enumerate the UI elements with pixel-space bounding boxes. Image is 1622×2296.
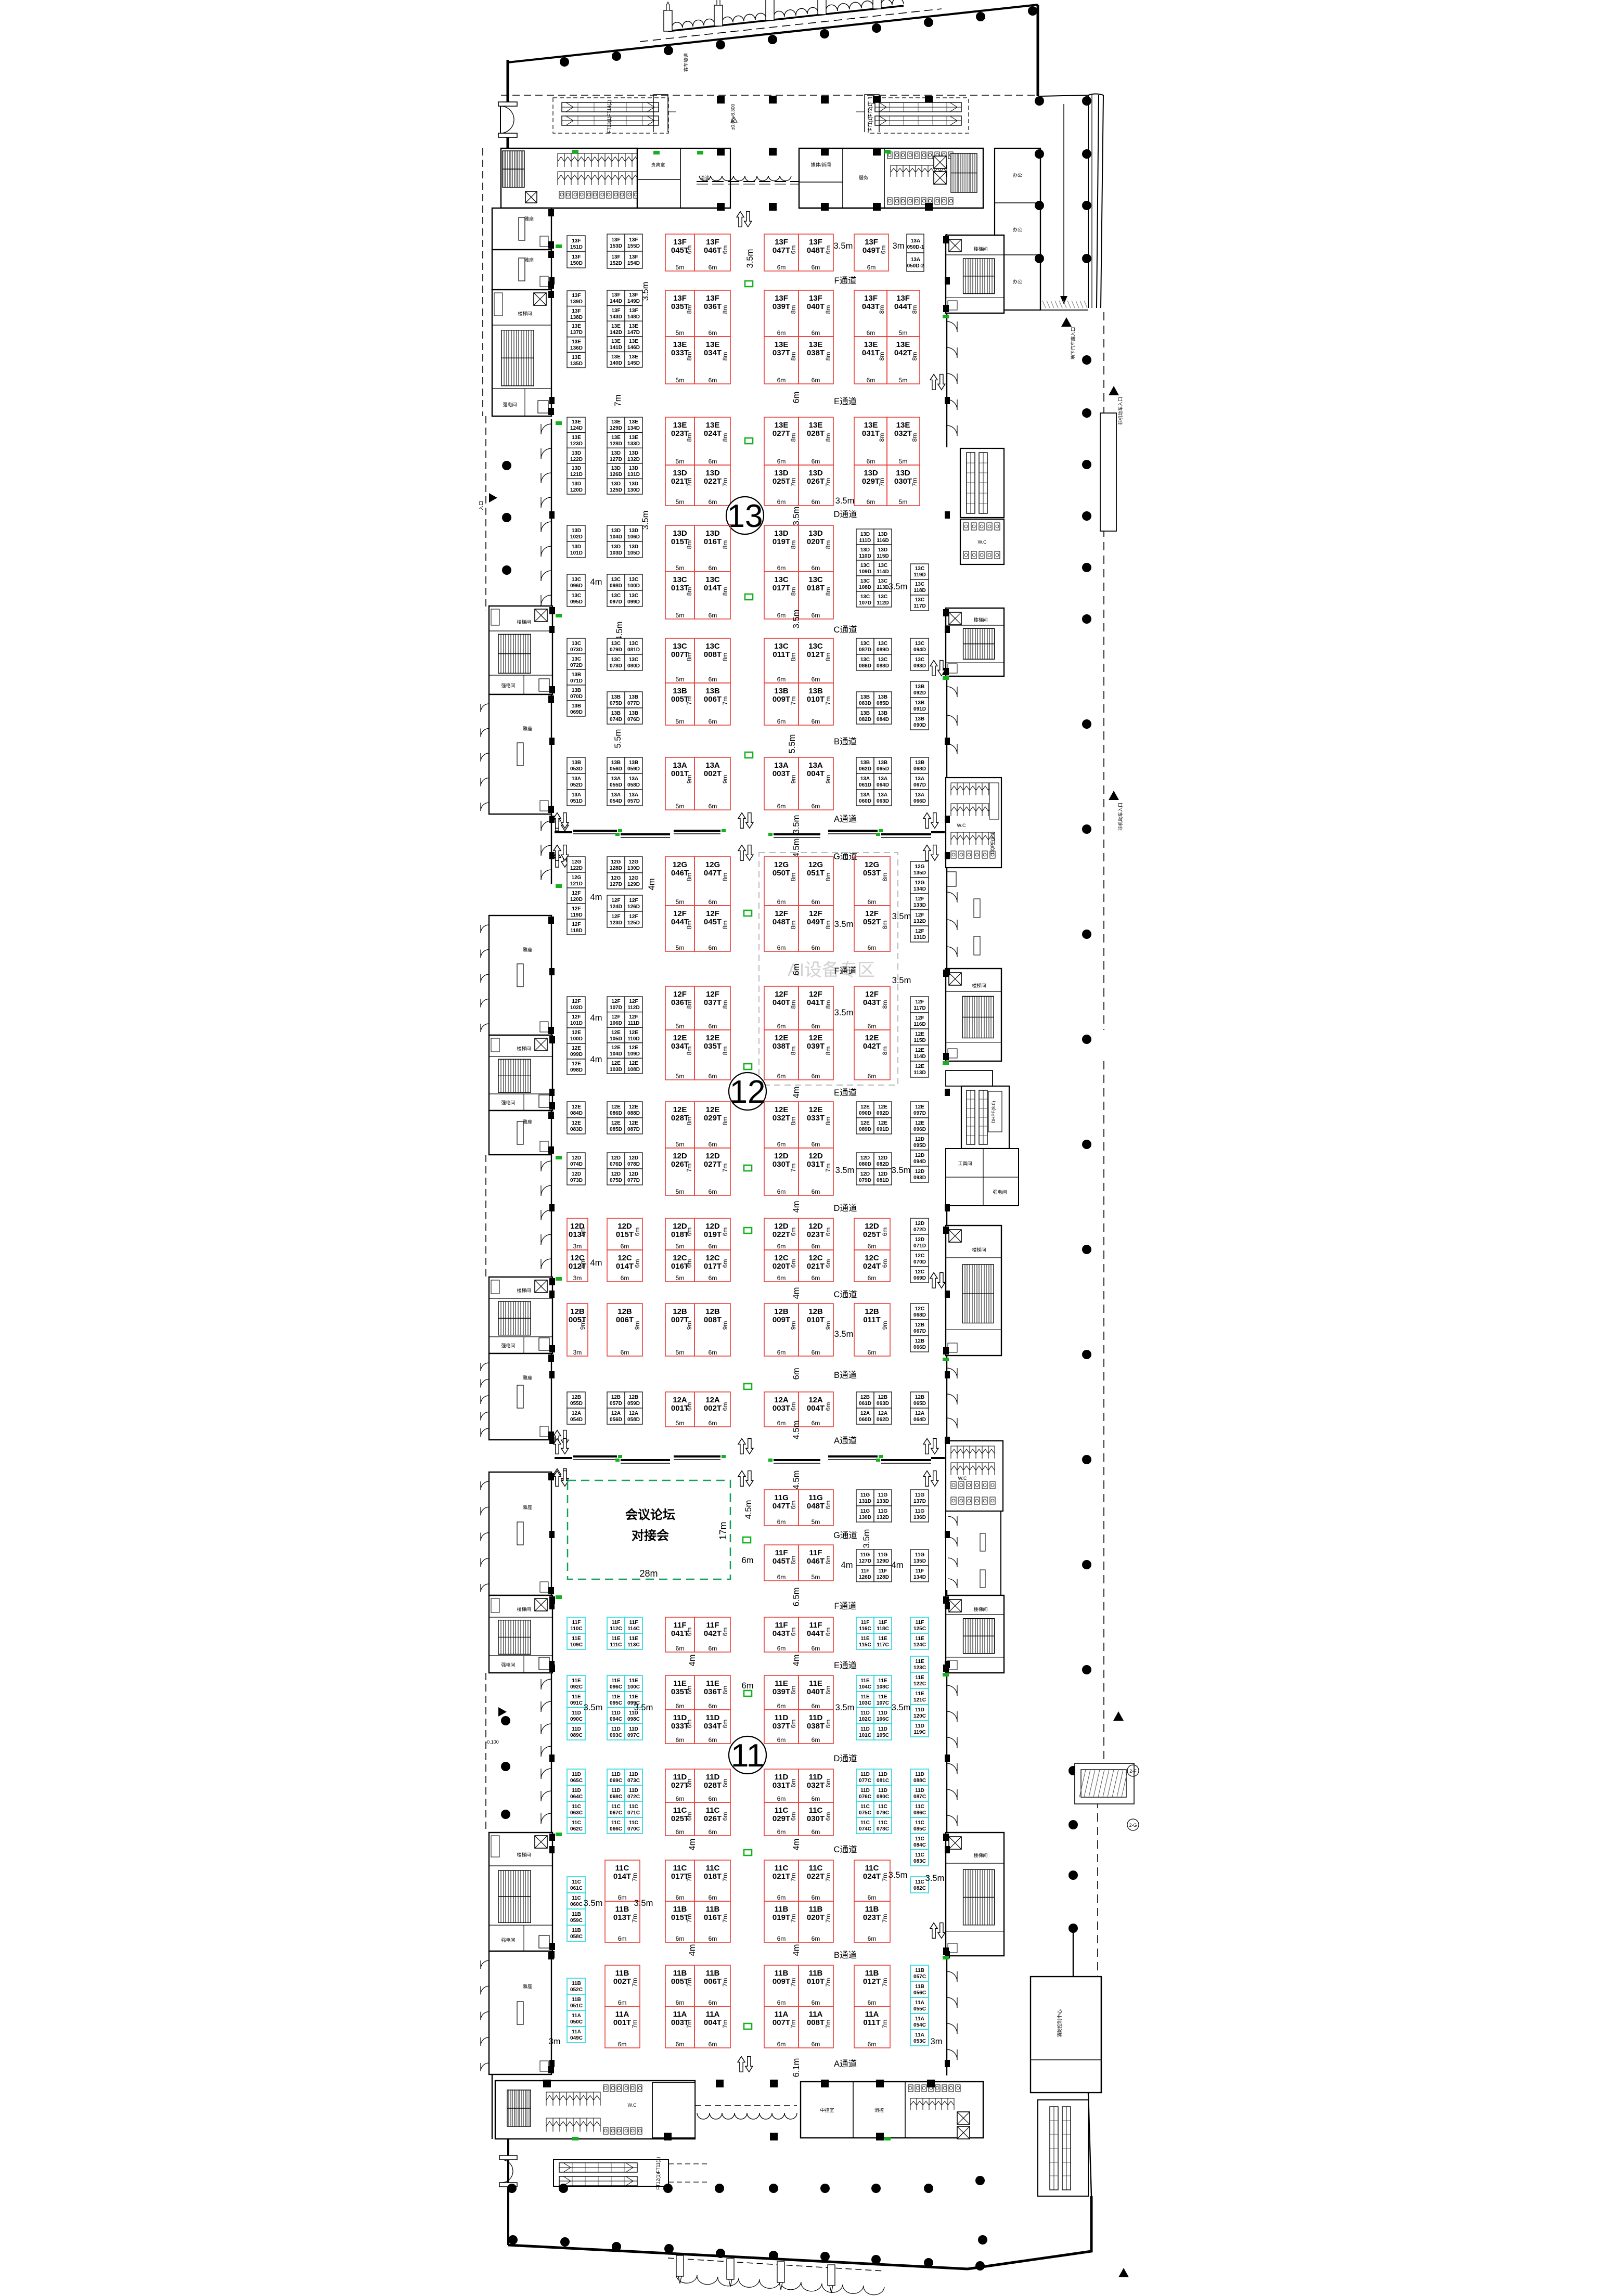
svg-text:12G: 12G: [629, 875, 639, 881]
svg-text:072C: 072C: [627, 1794, 640, 1800]
svg-text:3.5m: 3.5m: [889, 1871, 908, 1880]
svg-text:7m: 7m: [686, 696, 693, 705]
svg-text:12E: 12E: [629, 1104, 638, 1110]
svg-text:11E: 11E: [611, 1678, 621, 1684]
svg-text:111C: 111C: [610, 1642, 622, 1648]
svg-text:6m: 6m: [777, 498, 786, 506]
svg-text:110D: 110D: [627, 1036, 639, 1042]
svg-text:12E: 12E: [611, 1120, 621, 1126]
svg-text:11: 11: [731, 1738, 764, 1774]
svg-text:中控室: 中控室: [820, 2107, 834, 2113]
svg-text:127D: 127D: [859, 1558, 871, 1564]
svg-text:7m: 7m: [686, 478, 693, 487]
svg-text:089D: 089D: [877, 647, 889, 653]
svg-text:076D: 076D: [610, 1162, 622, 1167]
svg-text:13E: 13E: [611, 419, 621, 425]
svg-text:12E: 12E: [706, 1105, 720, 1114]
svg-text:强电间: 强电间: [993, 1189, 1007, 1195]
svg-text:067D: 067D: [913, 782, 926, 788]
svg-text:11D: 11D: [915, 1772, 924, 1777]
svg-text:11F: 11F: [673, 1621, 686, 1630]
svg-text:D通道: D通道: [834, 1753, 857, 1763]
svg-text:6m: 6m: [790, 1812, 797, 1821]
svg-text:050T: 050T: [773, 869, 790, 878]
svg-text:17m: 17m: [718, 1521, 728, 1540]
svg-text:6m: 6m: [777, 1023, 786, 1030]
svg-text:6m: 6m: [686, 1720, 693, 1729]
svg-text:002T: 002T: [613, 1977, 631, 1986]
svg-text:7m: 7m: [881, 1914, 889, 1923]
svg-text:雅座: 雅座: [523, 1983, 532, 1989]
svg-text:014T: 014T: [616, 1262, 634, 1271]
svg-text:6m: 6m: [812, 329, 820, 337]
svg-text:12D: 12D: [865, 1222, 879, 1231]
svg-text:6m: 6m: [709, 803, 717, 810]
svg-text:6m: 6m: [621, 1243, 629, 1250]
svg-text:6m: 6m: [868, 1023, 877, 1030]
svg-text:6m: 6m: [812, 2041, 820, 2048]
svg-text:11C: 11C: [673, 1864, 687, 1873]
svg-text:057D: 057D: [627, 798, 640, 804]
svg-text:13E: 13E: [572, 419, 581, 425]
svg-text:090D: 090D: [859, 1111, 871, 1116]
svg-text:13C: 13C: [860, 641, 870, 647]
svg-text:8m: 8m: [686, 540, 693, 549]
svg-text:6m: 6m: [825, 1720, 832, 1729]
svg-text:8m: 8m: [825, 921, 832, 930]
svg-text:011T: 011T: [863, 1315, 880, 1324]
svg-text:13E: 13E: [572, 355, 581, 360]
svg-text:068D: 068D: [913, 1312, 926, 1318]
svg-text:8m: 8m: [878, 352, 885, 361]
svg-text:13C: 13C: [611, 657, 621, 663]
svg-text:008T: 008T: [704, 1315, 722, 1324]
svg-text:067D: 067D: [913, 1328, 926, 1334]
svg-text:120C: 120C: [913, 1713, 926, 1719]
svg-text:6m: 6m: [676, 1999, 685, 2006]
svg-text:146D: 146D: [627, 345, 640, 351]
svg-text:8m: 8m: [825, 653, 832, 662]
svg-text:12E: 12E: [706, 1034, 720, 1042]
svg-text:11C: 11C: [572, 1895, 581, 1901]
svg-text:12E: 12E: [673, 1034, 687, 1042]
svg-text:B通道: B通道: [834, 1370, 857, 1380]
svg-text:5m: 5m: [676, 718, 685, 725]
svg-text:12E: 12E: [865, 1034, 879, 1042]
svg-text:6m: 6m: [812, 1935, 820, 1942]
svg-text:12D: 12D: [878, 1155, 887, 1161]
svg-text:6m: 6m: [790, 1720, 797, 1729]
svg-text:4m: 4m: [792, 1655, 801, 1667]
svg-text:075C: 075C: [859, 1810, 871, 1816]
svg-text:13E: 13E: [629, 419, 638, 425]
svg-text:13C: 13C: [705, 575, 720, 584]
svg-text:13B: 13B: [915, 760, 924, 766]
svg-text:126D: 126D: [859, 1575, 871, 1580]
svg-text:040T: 040T: [807, 1687, 825, 1696]
svg-text:5m: 5m: [676, 803, 685, 810]
svg-text:116C: 116C: [859, 1626, 871, 1632]
svg-text:031T: 031T: [773, 1781, 790, 1790]
svg-text:13B: 13B: [878, 760, 887, 766]
svg-text:6m: 6m: [825, 1779, 832, 1788]
svg-text:6m: 6m: [825, 1556, 832, 1565]
svg-text:12A: 12A: [808, 1396, 823, 1404]
svg-text:085D: 085D: [610, 1127, 622, 1132]
svg-text:11G: 11G: [878, 1552, 888, 1558]
svg-text:028T: 028T: [704, 1781, 722, 1790]
svg-text:3.5m: 3.5m: [892, 912, 911, 921]
svg-text:12F: 12F: [611, 898, 620, 904]
svg-text:12: 12: [730, 1074, 766, 1110]
svg-text:13C: 13C: [611, 577, 621, 583]
svg-text:6m: 6m: [868, 1894, 877, 1901]
svg-text:6m: 6m: [621, 1274, 629, 1282]
svg-text:12F: 12F: [611, 999, 620, 1004]
svg-text:154D: 154D: [627, 261, 640, 266]
svg-text:7m: 7m: [722, 2020, 729, 2029]
svg-text:030T: 030T: [807, 1814, 825, 1823]
svg-text:078D: 078D: [610, 663, 622, 669]
svg-text:13D: 13D: [629, 466, 638, 471]
svg-text:12C: 12C: [808, 1254, 823, 1262]
svg-text:8m: 8m: [881, 1000, 889, 1009]
svg-text:064D: 064D: [913, 1417, 926, 1423]
svg-text:4m: 4m: [792, 1087, 801, 1099]
svg-text:11B: 11B: [615, 1905, 629, 1914]
svg-text:6m: 6m: [868, 1999, 877, 2006]
svg-text:098D: 098D: [610, 583, 622, 589]
svg-text:11C: 11C: [878, 1804, 887, 1810]
svg-text:3.5m: 3.5m: [835, 496, 855, 506]
svg-text:6m: 6m: [777, 1702, 786, 1710]
svg-text:7m: 7m: [722, 1164, 729, 1172]
svg-text:13B: 13B: [915, 716, 924, 722]
svg-text:11C: 11C: [706, 1806, 720, 1815]
svg-text:楼梯间: 楼梯间: [517, 1606, 531, 1612]
svg-text:078C: 078C: [877, 1826, 889, 1832]
svg-text:6m: 6m: [812, 1420, 820, 1427]
svg-text:13A: 13A: [611, 792, 621, 798]
svg-text:095C: 095C: [610, 1700, 622, 1706]
svg-text:103D: 103D: [610, 1067, 622, 1073]
svg-text:103D: 103D: [610, 550, 622, 556]
svg-text:4m: 4m: [792, 1287, 801, 1299]
svg-text:087D: 087D: [627, 1127, 640, 1132]
svg-text:004T: 004T: [704, 2018, 722, 2027]
svg-text:3m: 3m: [549, 2037, 561, 2046]
svg-text:13C: 13C: [860, 578, 870, 584]
svg-text:11E: 11E: [611, 1694, 621, 1700]
svg-text:13E: 13E: [809, 421, 823, 430]
svg-text:053D: 053D: [570, 766, 583, 772]
svg-text:087C: 087C: [913, 1794, 926, 1800]
svg-text:13E: 13E: [896, 421, 910, 430]
svg-text:110D: 110D: [859, 553, 871, 559]
svg-text:043T: 043T: [862, 302, 880, 311]
svg-text:6m: 6m: [676, 1828, 685, 1836]
svg-text:094D: 094D: [913, 1159, 926, 1165]
svg-text:12E: 12E: [629, 1030, 638, 1036]
svg-text:11F: 11F: [572, 1620, 581, 1626]
svg-text:E通道: E通道: [834, 396, 857, 406]
svg-text:7m: 7m: [825, 1873, 832, 1882]
svg-text:047T: 047T: [773, 246, 790, 255]
svg-text:11C: 11C: [611, 1820, 621, 1826]
svg-text:13D: 13D: [774, 529, 789, 538]
svg-text:13A: 13A: [673, 761, 687, 770]
svg-text:13B: 13B: [611, 711, 621, 716]
svg-text:12F: 12F: [572, 891, 581, 896]
svg-text:8m: 8m: [686, 587, 693, 596]
svg-text:5m: 5m: [676, 1274, 685, 1282]
svg-text:079C: 079C: [877, 1810, 889, 1816]
svg-text:11D: 11D: [775, 1773, 789, 1782]
svg-text:6m: 6m: [790, 1779, 797, 1788]
svg-text:122D: 122D: [570, 457, 583, 462]
svg-text:049T: 049T: [863, 246, 880, 255]
svg-text:9m: 9m: [790, 775, 797, 784]
svg-text:6m: 6m: [812, 564, 820, 572]
svg-text:4m: 4m: [590, 1013, 602, 1023]
svg-text:4m: 4m: [792, 1839, 801, 1851]
svg-text:8m: 8m: [790, 352, 797, 361]
svg-text:13C: 13C: [673, 575, 687, 584]
svg-text:023T: 023T: [863, 1913, 881, 1922]
svg-text:6m: 6m: [777, 1243, 786, 1250]
svg-text:7m: 7m: [722, 1914, 729, 1923]
svg-text:3.5m: 3.5m: [862, 1529, 871, 1549]
svg-text:120D: 120D: [570, 897, 583, 902]
svg-text:11F: 11F: [879, 1620, 887, 1626]
svg-text:037T: 037T: [773, 349, 790, 357]
svg-text:064D: 064D: [877, 782, 889, 788]
svg-text:13F: 13F: [629, 254, 638, 260]
svg-text:138D: 138D: [570, 315, 583, 320]
svg-text:044T: 044T: [894, 302, 912, 311]
svg-text:054D: 054D: [610, 798, 622, 804]
svg-text:13A: 13A: [860, 792, 870, 798]
svg-text:060D: 060D: [859, 798, 871, 804]
svg-text:9m: 9m: [686, 775, 693, 784]
svg-text:010T: 010T: [807, 1315, 825, 1324]
svg-text:8m: 8m: [825, 1000, 832, 1009]
svg-text:12B: 12B: [878, 1395, 887, 1400]
svg-text:3.5m: 3.5m: [834, 1330, 854, 1339]
svg-text:11F: 11F: [916, 1620, 924, 1626]
svg-text:12E: 12E: [611, 1061, 621, 1066]
svg-text:6m: 6m: [790, 246, 797, 254]
svg-text:雅座: 雅座: [523, 1119, 532, 1125]
svg-text:7m: 7m: [790, 1873, 797, 1882]
svg-text:109D: 109D: [859, 569, 871, 575]
svg-text:13C: 13C: [572, 577, 581, 583]
svg-text:084D: 084D: [877, 717, 889, 723]
svg-text:13D: 13D: [629, 544, 638, 550]
svg-text:13E: 13E: [611, 324, 621, 329]
svg-text:11E: 11E: [860, 1694, 870, 1700]
svg-text:W.C: W.C: [978, 539, 987, 545]
svg-text:13: 13: [727, 498, 763, 534]
svg-text:12E: 12E: [775, 1105, 789, 1114]
svg-text:6m: 6m: [881, 1259, 889, 1268]
svg-text:12B: 12B: [915, 1322, 924, 1328]
svg-text:11G: 11G: [878, 1508, 888, 1514]
svg-text:12D: 12D: [860, 1155, 870, 1161]
svg-text:012T: 012T: [863, 1977, 881, 1986]
svg-text:13A: 13A: [629, 776, 638, 782]
svg-text:016T: 016T: [704, 1913, 722, 1922]
svg-text:003T: 003T: [773, 769, 790, 778]
svg-text:6m: 6m: [676, 1894, 685, 1901]
svg-text:12E: 12E: [915, 1120, 924, 1126]
svg-text:6.5m: 6.5m: [792, 1588, 801, 1607]
svg-text:097D: 097D: [610, 599, 622, 605]
svg-text:13A: 13A: [878, 792, 887, 798]
svg-text:037T: 037T: [773, 1722, 790, 1731]
svg-text:13F: 13F: [775, 294, 788, 303]
svg-text:025T: 025T: [773, 477, 790, 486]
svg-text:13E: 13E: [809, 340, 823, 349]
svg-text:077D: 077D: [627, 701, 640, 706]
svg-text:068C: 068C: [610, 1794, 622, 1800]
svg-text:6m: 6m: [709, 1795, 717, 1802]
svg-text:017T: 017T: [773, 584, 790, 592]
svg-text:非机动车入口: 非机动车入口: [1117, 397, 1123, 425]
svg-text:12G: 12G: [611, 875, 621, 881]
svg-text:6m: 6m: [825, 1628, 832, 1636]
svg-text:004T: 004T: [807, 769, 825, 778]
svg-text:080C: 080C: [877, 1794, 889, 1800]
svg-text:11B: 11B: [915, 1968, 924, 1973]
svg-text:消防控制中心: 消防控制中心: [1057, 2009, 1062, 2037]
svg-text:6m: 6m: [722, 1628, 729, 1636]
svg-text:112C: 112C: [610, 1626, 622, 1632]
svg-text:6m: 6m: [709, 1274, 717, 1282]
svg-text:042T: 042T: [863, 1042, 881, 1051]
svg-text:118C: 118C: [877, 1626, 889, 1632]
svg-text:强电间: 强电间: [503, 402, 517, 407]
svg-text:12E: 12E: [572, 1120, 581, 1126]
svg-text:13F: 13F: [572, 238, 581, 244]
svg-text:11A: 11A: [775, 2010, 789, 2019]
svg-text:11B: 11B: [673, 1969, 687, 1978]
svg-text:13D: 13D: [774, 469, 789, 478]
svg-text:4m: 4m: [590, 1258, 602, 1268]
svg-text:091C: 091C: [570, 1700, 583, 1706]
svg-text:6m: 6m: [812, 498, 820, 506]
svg-text:13C: 13C: [572, 641, 581, 647]
svg-text:087D: 087D: [859, 647, 871, 653]
svg-text:13D: 13D: [864, 469, 878, 478]
svg-text:6m: 6m: [709, 2041, 717, 2048]
svg-text:12F: 12F: [629, 898, 638, 904]
svg-text:6.1m: 6.1m: [792, 2058, 801, 2078]
svg-text:070D: 070D: [570, 694, 583, 700]
svg-text:13B: 13B: [860, 694, 870, 700]
svg-text:13D: 13D: [896, 469, 910, 478]
svg-text:082D: 082D: [859, 717, 871, 723]
svg-text:3.5m: 3.5m: [584, 1899, 603, 1908]
svg-text:12D: 12D: [915, 1221, 924, 1227]
svg-text:11D: 11D: [611, 1788, 621, 1794]
svg-text:12D: 12D: [774, 1152, 789, 1160]
svg-text:4m: 4m: [792, 1201, 801, 1213]
svg-text:040T: 040T: [773, 998, 790, 1007]
svg-text:022T: 022T: [807, 1872, 825, 1881]
svg-text:108D: 108D: [627, 1067, 640, 1073]
svg-text:13C: 13C: [629, 641, 638, 647]
svg-text:065C: 065C: [570, 1778, 583, 1784]
svg-text:034T: 034T: [704, 1722, 722, 1731]
svg-text:6m: 6m: [777, 458, 786, 465]
svg-text:12F: 12F: [572, 922, 581, 927]
svg-text:13B: 13B: [673, 687, 687, 695]
svg-text:13D: 13D: [611, 450, 621, 456]
svg-text:12G: 12G: [774, 860, 789, 869]
svg-text:128D: 128D: [610, 866, 622, 871]
svg-text:114C: 114C: [627, 1626, 639, 1632]
svg-text:11B: 11B: [706, 1969, 720, 1978]
svg-text:144D: 144D: [610, 299, 622, 304]
svg-text:12B: 12B: [774, 1307, 789, 1316]
svg-text:7m: 7m: [790, 1164, 797, 1172]
svg-text:13F: 13F: [864, 294, 878, 303]
svg-text:8m: 8m: [686, 1047, 693, 1055]
svg-text:11A: 11A: [572, 2029, 581, 2035]
svg-text:12E: 12E: [629, 1045, 638, 1051]
svg-text:9m: 9m: [825, 1321, 832, 1330]
svg-text:6m: 6m: [812, 1274, 820, 1282]
svg-text:消控: 消控: [874, 2107, 884, 2113]
svg-text:12F: 12F: [809, 990, 822, 999]
svg-text:楼梯间: 楼梯间: [973, 246, 987, 252]
svg-text:6m: 6m: [868, 1243, 877, 1250]
svg-text:12B: 12B: [915, 1338, 924, 1344]
svg-text:6m: 6m: [709, 1999, 717, 2006]
svg-text:12D: 12D: [617, 1222, 632, 1231]
svg-text:6m: 6m: [777, 2041, 786, 2048]
svg-text:E通道: E通道: [834, 1660, 857, 1670]
svg-text:038T: 038T: [807, 1722, 825, 1731]
svg-text:6m: 6m: [709, 1702, 717, 1710]
svg-text:124D: 124D: [610, 904, 622, 910]
svg-text:062C: 062C: [570, 1826, 583, 1832]
svg-text:026T: 026T: [704, 1814, 722, 1823]
svg-text:13C: 13C: [629, 577, 638, 583]
svg-text:13A: 13A: [572, 792, 581, 798]
svg-text:11D: 11D: [860, 1772, 870, 1777]
svg-text:6m: 6m: [812, 676, 820, 683]
svg-text:13E: 13E: [629, 339, 638, 344]
svg-text:8m: 8m: [686, 921, 693, 930]
svg-text:6m: 6m: [777, 1349, 786, 1356]
svg-text:061C: 061C: [570, 1886, 583, 1891]
svg-text:069D: 069D: [570, 710, 583, 715]
svg-text:13B: 13B: [808, 687, 823, 695]
svg-text:11F: 11F: [706, 1621, 719, 1630]
svg-text:6m: 6m: [812, 1828, 820, 1836]
svg-text:13D: 13D: [611, 544, 621, 550]
svg-text:5m: 5m: [676, 1188, 685, 1195]
svg-text:118D: 118D: [913, 588, 925, 594]
svg-text:11A: 11A: [809, 2010, 823, 2019]
svg-text:043T: 043T: [863, 998, 881, 1007]
svg-text:11C: 11C: [611, 1804, 621, 1810]
svg-text:11D: 11D: [572, 1726, 581, 1732]
svg-text:137D: 137D: [570, 330, 583, 336]
svg-text:079D: 079D: [859, 1178, 871, 1183]
